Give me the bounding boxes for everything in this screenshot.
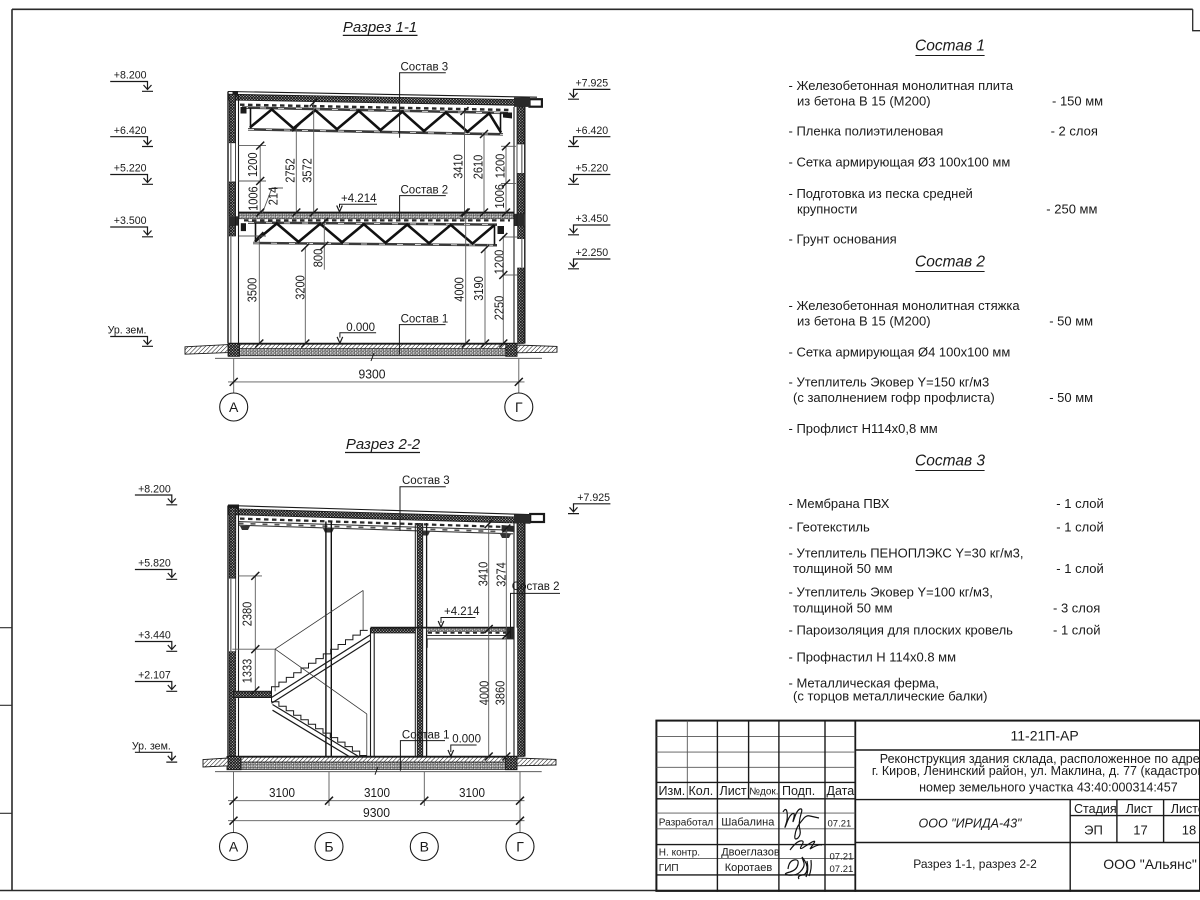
svg-text:Состав 3: Состав 3 bbox=[402, 475, 450, 487]
svg-text:Ур. зем.: Ур. зем. bbox=[132, 741, 171, 753]
svg-text:+5.220: +5.220 bbox=[114, 163, 147, 175]
svg-text:Состав 2: Состав 2 bbox=[915, 254, 985, 271]
svg-text:1006: 1006 bbox=[246, 186, 261, 211]
svg-text:3190: 3190 bbox=[471, 276, 486, 301]
svg-text:- Утеплитель Эковер Y=150 кг/м: - Утеплитель Эковер Y=150 кг/м3 bbox=[789, 375, 990, 390]
svg-text:2380: 2380 bbox=[240, 602, 255, 627]
svg-text:Состав 2: Состав 2 bbox=[512, 581, 560, 593]
svg-text:- Геотекстиль: - Геотекстиль bbox=[789, 520, 870, 535]
svg-text:3100: 3100 bbox=[459, 785, 485, 800]
svg-text:- Железобетонная монолитная с: - Железобетонная монолитная стяжка bbox=[789, 298, 1021, 313]
svg-text:- Подготовка из песка средней: - Подготовка из песка средней bbox=[789, 186, 973, 201]
svg-text:- Утеплитель Эковер Y=100 кг/м: - Утеплитель Эковер Y=100 кг/м3, bbox=[789, 585, 993, 600]
svg-text:№док.: №док. bbox=[749, 787, 778, 798]
svg-text:3500: 3500 bbox=[245, 278, 260, 303]
svg-text:Ур. зем.: Ур. зем. bbox=[108, 325, 147, 337]
svg-text:- 50 мм: - 50 мм bbox=[1049, 390, 1093, 405]
svg-text:0.000: 0.000 bbox=[346, 322, 375, 334]
svg-text:Разрез 2-2: Разрез 2-2 bbox=[346, 436, 421, 453]
svg-text:Стадия: Стадия bbox=[1074, 802, 1117, 816]
svg-text:Разработал: Разработал bbox=[659, 817, 714, 829]
svg-text:- Пароизоляция для плоских кро: - Пароизоляция для плоских кровель bbox=[789, 622, 1014, 637]
svg-text:номер земельного участка 43:40: номер земельного участка 43:40:000314:45… bbox=[919, 780, 1178, 794]
svg-text:- 250 мм: - 250 мм bbox=[1046, 202, 1097, 217]
svg-text:+2.250: +2.250 bbox=[576, 247, 609, 259]
svg-text:Разрез 1-1: Разрез 1-1 bbox=[343, 19, 417, 36]
svg-text:1200: 1200 bbox=[493, 154, 508, 179]
svg-text:1333: 1333 bbox=[240, 659, 255, 684]
svg-text:+4.214: +4.214 bbox=[341, 193, 377, 205]
svg-text:2752: 2752 bbox=[283, 158, 298, 183]
svg-text:18: 18 bbox=[1182, 822, 1196, 837]
svg-text:+2.107: +2.107 bbox=[138, 670, 171, 682]
svg-text:+3.450: +3.450 bbox=[576, 213, 609, 225]
svg-text:1200: 1200 bbox=[492, 250, 507, 275]
svg-text:Подп.: Подп. bbox=[782, 784, 815, 798]
svg-text:- Пленка полиэтиленовая: - Пленка полиэтиленовая bbox=[789, 124, 944, 139]
svg-text:+8.200: +8.200 bbox=[114, 70, 147, 82]
svg-text:3410: 3410 bbox=[476, 562, 491, 587]
svg-text:3274: 3274 bbox=[494, 562, 509, 587]
svg-text:- 50 мм: - 50 мм bbox=[1049, 314, 1093, 329]
svg-text:- 1 слой: - 1 слой bbox=[1056, 496, 1104, 511]
svg-text:1006: 1006 bbox=[492, 184, 507, 209]
svg-text:г. Киров, Ленинский район, ул.: г. Киров, Ленинский район, ул. Маклина, … bbox=[872, 764, 1200, 778]
svg-text:Кол.: Кол. bbox=[689, 784, 714, 798]
svg-text:толщиной 50 мм: толщиной 50 мм bbox=[793, 600, 893, 615]
svg-text:3100: 3100 bbox=[364, 785, 390, 800]
svg-text:Г: Г bbox=[516, 839, 524, 855]
svg-text:07.21: 07.21 bbox=[830, 851, 854, 862]
svg-text:- 1 слой: - 1 слой bbox=[1053, 622, 1101, 637]
svg-text:крупности: крупности bbox=[797, 202, 857, 217]
svg-text:- Сетка армирующая Ø4 100х100: - Сетка армирующая Ø4 100х100 мм bbox=[789, 345, 1011, 360]
svg-text:07.21: 07.21 bbox=[830, 864, 854, 875]
svg-text:- Профнастил Н 114х0.8 мм: - Профнастил Н 114х0.8 мм bbox=[789, 650, 957, 665]
svg-text:- Утеплитель ПЕНОПЛЭКС Y=30 кг: - Утеплитель ПЕНОПЛЭКС Y=30 кг/м3, bbox=[789, 546, 1024, 561]
svg-text:А: А bbox=[229, 839, 239, 855]
svg-text:толщиной 50 мм: толщиной 50 мм bbox=[793, 561, 893, 576]
svg-text:214: 214 bbox=[266, 187, 281, 206]
svg-text:Лист: Лист bbox=[1126, 802, 1153, 816]
svg-text:+7.925: +7.925 bbox=[576, 78, 609, 90]
svg-text:ЭП: ЭП bbox=[1084, 822, 1103, 837]
svg-text:- 150 мм: - 150 мм bbox=[1052, 94, 1103, 109]
svg-text:3860: 3860 bbox=[493, 681, 508, 706]
svg-text:- Грунт основания: - Грунт основания bbox=[789, 232, 897, 247]
svg-text:Состав 3: Состав 3 bbox=[401, 61, 449, 73]
svg-text:3572: 3572 bbox=[300, 158, 315, 183]
svg-text:3410: 3410 bbox=[451, 154, 466, 179]
svg-text:из бетона В 15 (М200): из бетона В 15 (М200) bbox=[797, 94, 931, 109]
svg-text:- 3 слоя: - 3 слоя bbox=[1053, 600, 1100, 615]
svg-text:0.000: 0.000 bbox=[452, 734, 481, 746]
svg-text:Б: Б bbox=[324, 839, 333, 855]
svg-text:4000: 4000 bbox=[452, 277, 467, 302]
svg-text:Изм.: Изм. bbox=[659, 784, 686, 798]
svg-text:- Сетка армирующая Ø3 100х100: - Сетка армирующая Ø3 100х100 мм bbox=[789, 155, 1011, 170]
svg-text:800: 800 bbox=[310, 249, 325, 268]
svg-text:+3.500: +3.500 bbox=[114, 215, 147, 227]
svg-text:(с заполнением гофр профлиста): (с заполнением гофр профлиста) bbox=[793, 390, 995, 405]
svg-text:+5.820: +5.820 bbox=[138, 558, 171, 570]
svg-text:Листов: Листов bbox=[1171, 802, 1200, 816]
svg-text:Состав 1: Состав 1 bbox=[402, 729, 450, 741]
svg-text:11-21П-АР: 11-21П-АР bbox=[1011, 728, 1079, 744]
svg-text:Состав 2: Состав 2 bbox=[401, 184, 449, 196]
svg-text:Лист: Лист bbox=[720, 784, 747, 798]
svg-text:- Железобетонная монолитная п: - Железобетонная монолитная плита bbox=[789, 78, 1014, 93]
svg-text:17: 17 bbox=[1133, 822, 1147, 837]
svg-text:Коротаев: Коротаев bbox=[725, 862, 773, 874]
svg-text:+6.420: +6.420 bbox=[576, 125, 609, 137]
svg-text:+5.220: +5.220 bbox=[576, 163, 609, 175]
svg-text:1200: 1200 bbox=[245, 152, 260, 177]
svg-text:2250: 2250 bbox=[492, 296, 507, 321]
svg-text:2610: 2610 bbox=[471, 155, 486, 180]
svg-text:В: В bbox=[420, 839, 429, 855]
svg-text:Г: Г bbox=[515, 399, 523, 415]
svg-text:4000: 4000 bbox=[477, 681, 492, 706]
svg-text:из бетона В 15 (М200): из бетона В 15 (М200) bbox=[797, 314, 931, 329]
svg-text:+4.214: +4.214 bbox=[444, 606, 480, 618]
svg-text:Двоеглазов: Двоеглазов bbox=[721, 847, 780, 859]
svg-text:ООО "Альянс": ООО "Альянс" bbox=[1103, 856, 1197, 872]
svg-text:- Мембрана ПВХ: - Мембрана ПВХ bbox=[789, 496, 890, 511]
svg-text:- 1 слой: - 1 слой bbox=[1056, 561, 1104, 576]
svg-text:+6.420: +6.420 bbox=[114, 125, 147, 137]
svg-text:+7.925: +7.925 bbox=[577, 492, 610, 504]
svg-text:Состав 1: Состав 1 bbox=[915, 38, 985, 55]
svg-text:+3.440: +3.440 bbox=[138, 630, 171, 642]
svg-text:9300: 9300 bbox=[363, 805, 390, 820]
svg-text:+8.200: +8.200 bbox=[138, 483, 171, 495]
svg-text:Дата: Дата bbox=[827, 784, 855, 798]
svg-text:ООО "ИРИДА-43": ООО "ИРИДА-43" bbox=[919, 816, 1023, 830]
svg-text:Состав 1: Состав 1 bbox=[401, 313, 449, 325]
svg-text:- 1 слой: - 1 слой bbox=[1056, 520, 1104, 535]
svg-text:3100: 3100 bbox=[269, 785, 295, 800]
svg-text:Н. контр.: Н. контр. bbox=[659, 847, 700, 858]
svg-text:Разрез 1-1, разрез 2-2: Разрез 1-1, разрез 2-2 bbox=[913, 857, 1037, 871]
svg-text:- Профлист Н114х0,8 мм: - Профлист Н114х0,8 мм bbox=[789, 421, 938, 436]
svg-text:- 2 слоя: - 2 слоя bbox=[1051, 124, 1098, 139]
svg-text:07.21: 07.21 bbox=[828, 819, 852, 830]
svg-text:Состав 3: Состав 3 bbox=[915, 453, 985, 470]
svg-text:Шабалина: Шабалина bbox=[721, 817, 775, 829]
svg-text:А: А bbox=[229, 399, 239, 415]
svg-text:ГИП: ГИП bbox=[659, 863, 679, 874]
svg-text:(с торцов металлические балки): (с торцов металлические балки) bbox=[793, 689, 988, 704]
svg-text:9300: 9300 bbox=[359, 366, 386, 381]
svg-text:3200: 3200 bbox=[293, 275, 308, 300]
